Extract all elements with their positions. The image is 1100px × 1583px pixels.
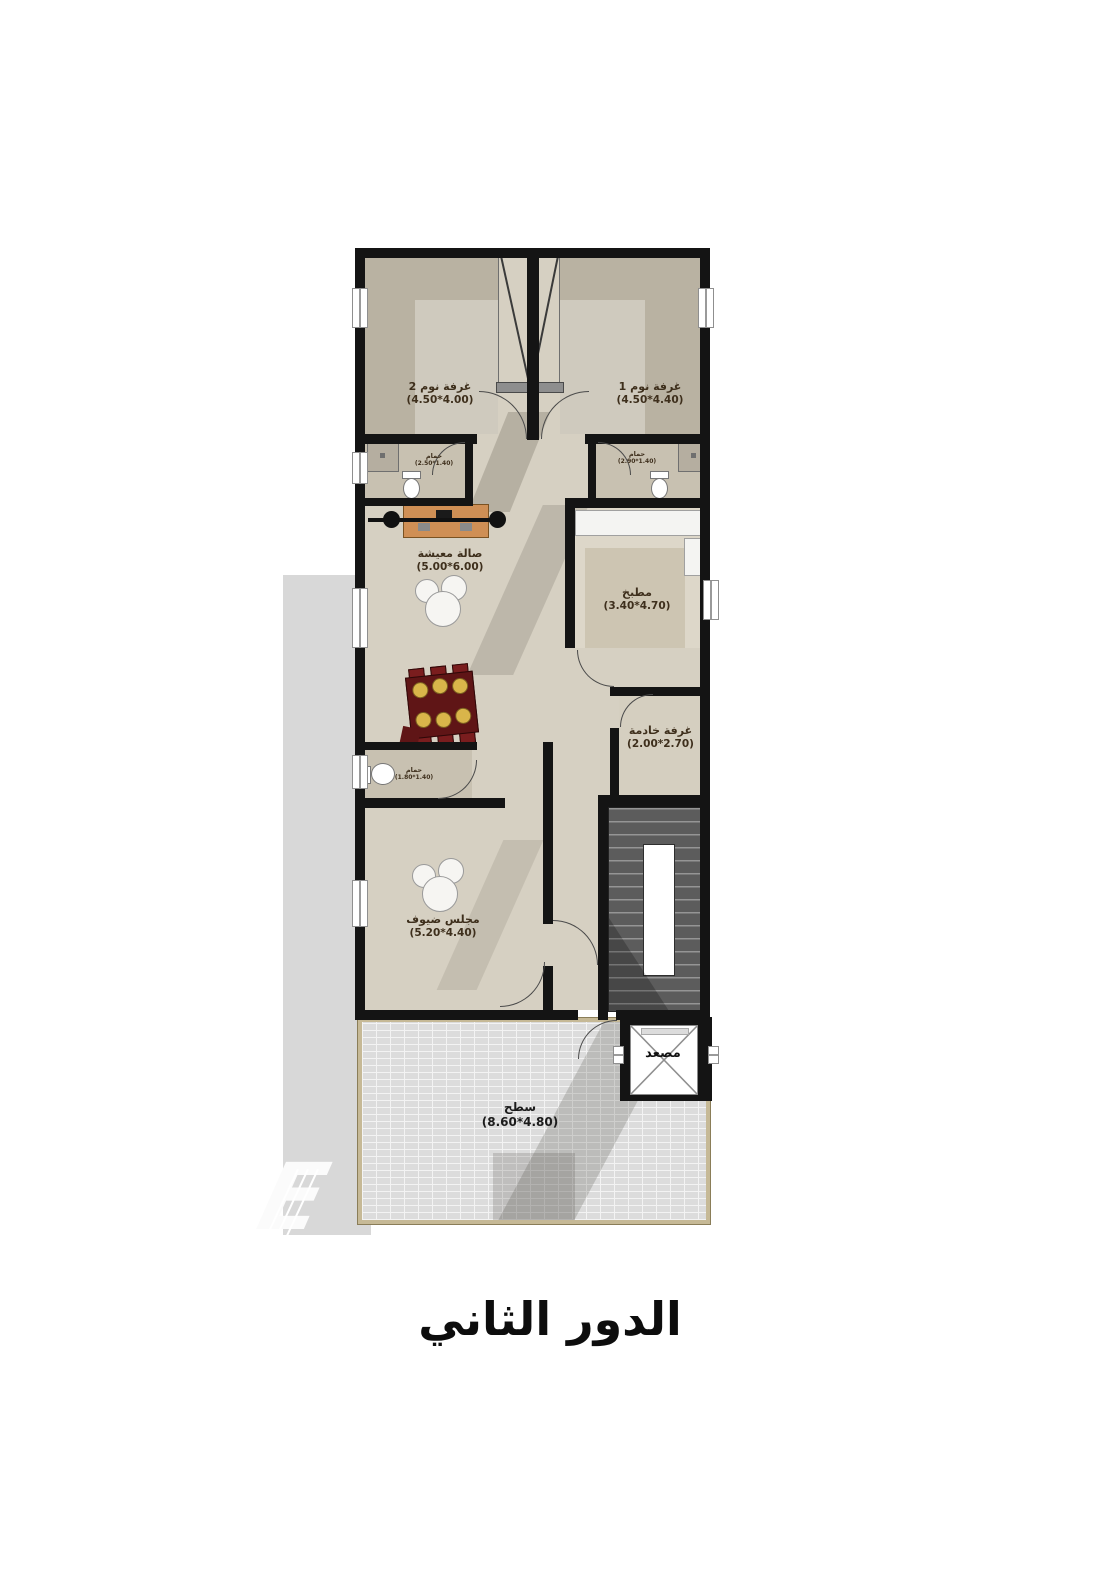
window-bedroom2 [352, 288, 368, 328]
shower-drain [691, 453, 696, 458]
room-label-bedroom2: غرفة نوم 2 (4.50*4.00) [385, 380, 495, 407]
wall-shaft [527, 248, 539, 440]
toilet-right [651, 478, 668, 499]
wall-kitchen-left [565, 498, 575, 648]
wall-bath-right [588, 434, 596, 506]
wall-right [700, 248, 710, 1020]
wall-majlis-top [355, 798, 505, 808]
room-label-kitchen: مطبخ (3.40*4.70) [592, 586, 682, 613]
room-label-maid-room: غرفة خادمة (2.00*2.70) [618, 724, 703, 751]
window-bedroom1 [698, 288, 714, 328]
window-kitchen [703, 580, 719, 620]
wall-corridor-upper [543, 742, 553, 924]
kitchen-counter [575, 510, 702, 536]
toilet-left [403, 478, 420, 499]
coffee-table-living [415, 575, 469, 629]
room-label-majlis: مجلس ضيوف (5.20*4.40) [388, 913, 498, 940]
room-label-living: صالة معيشة (5.00*6.00) [390, 547, 510, 574]
room-label-bedroom1: غرفة نوم 1 (4.50*4.40) [595, 380, 705, 407]
dining-set [398, 662, 486, 748]
wall-corridor-lower [543, 966, 553, 1020]
elevator-side-tab [613, 1046, 624, 1064]
wall-kitchen-top [565, 498, 710, 508]
window-small-bath [352, 755, 368, 789]
shower-left [367, 440, 399, 472]
staircase [608, 807, 702, 1012]
elevator-door [641, 1028, 689, 1035]
wall-bath-left-bottom [355, 498, 473, 506]
console-drawer [460, 523, 472, 531]
room-label-bath-left: حمام (2.50*1.40) [405, 452, 463, 468]
room-label-bath-right: حمام (2.90*1.40) [608, 450, 666, 466]
room-label-terrace: سطح (8.60*4.80) [460, 1100, 580, 1130]
wall-stair-top [598, 795, 710, 807]
coffee-table-circle [425, 591, 461, 627]
elevator-label: مصعد [630, 1046, 696, 1062]
coffee-table-majlis [412, 858, 466, 912]
plan-title: الدور الثاني [0, 1292, 1100, 1346]
window-bath-left [352, 452, 368, 484]
room-label-small-bath: حمام (1.80*1.40) [388, 766, 440, 782]
terrace-shadow-block [493, 1153, 576, 1220]
wall-stair-left [598, 795, 608, 1020]
elevator-side-tab [708, 1046, 719, 1064]
stair-void [643, 844, 675, 976]
window-living [352, 588, 368, 648]
wall-maid-top [610, 687, 710, 696]
tv-wall-bar [368, 518, 498, 522]
tv [436, 510, 452, 518]
console-drawer [418, 523, 430, 531]
shower-drain [380, 453, 385, 458]
wall-bath-left [465, 434, 473, 506]
coffee-table-circle [422, 876, 458, 912]
wall-small-bath-top [355, 742, 477, 750]
window-majlis [352, 880, 368, 927]
floor-plan-page: E سطح (8.60*4.80) مصعد [0, 0, 1100, 1583]
